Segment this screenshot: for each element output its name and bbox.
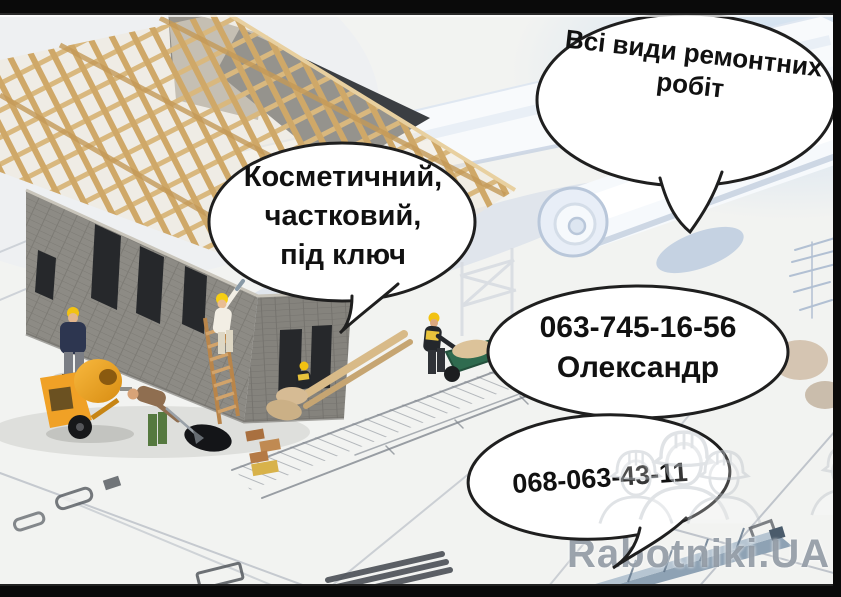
bubble-line: частковий, [212,197,474,236]
letterbox-bar-top [0,0,841,15]
bubble-line: під ключ [212,236,474,275]
letterbox-bar-right [833,0,841,597]
bubble-text-contact-main: 063-745-16-56 Олександр [492,308,784,387]
bubble-line: Косметичний, [212,158,474,197]
contact-name: Олександр [492,348,784,388]
construction-ad-image: Rabotniki.UA Всі види [0,0,841,597]
letterbox-bar-bottom [0,584,841,597]
bubble-text-work-types: Косметичний, частковий, під ключ [212,158,474,275]
phone-number: 063-745-16-56 [492,308,784,348]
